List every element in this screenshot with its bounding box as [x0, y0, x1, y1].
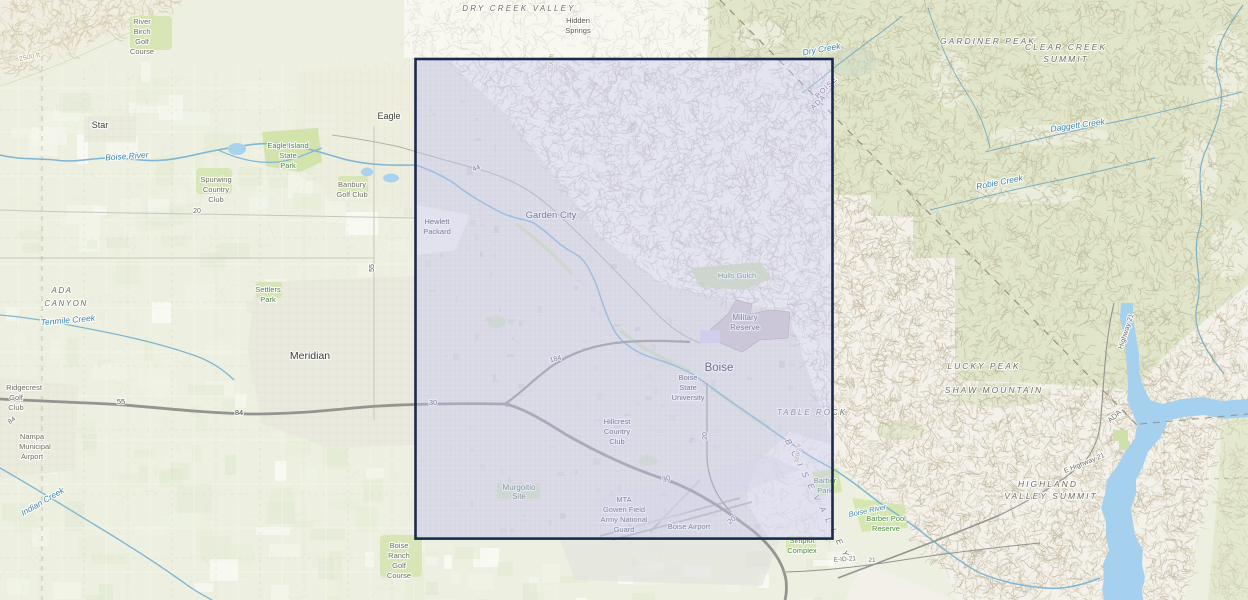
svg-text:LUCKY PEAK: LUCKY PEAK: [947, 361, 1020, 371]
svg-text:Star: Star: [92, 120, 109, 130]
svg-text:Birch: Birch: [133, 27, 150, 36]
svg-text:84: 84: [235, 408, 243, 417]
svg-text:Golf: Golf: [392, 561, 407, 570]
svg-text:Spurwing: Spurwing: [200, 175, 231, 184]
svg-text:Meridian: Meridian: [290, 350, 330, 362]
svg-text:Park: Park: [280, 161, 296, 170]
svg-text:Ranch: Ranch: [388, 551, 410, 560]
svg-text:Hidden: Hidden: [566, 16, 590, 25]
svg-text:Banbury: Banbury: [338, 180, 366, 189]
svg-text:Airport: Airport: [21, 452, 44, 461]
svg-text:Boise: Boise: [390, 541, 409, 550]
svg-text:CLEAR CREEK: CLEAR CREEK: [1025, 42, 1107, 52]
svg-text:Barber Pool: Barber Pool: [866, 514, 906, 523]
svg-text:SHAW MOUNTAIN: SHAW MOUNTAIN: [945, 385, 1043, 395]
svg-text:Settlers: Settlers: [255, 285, 281, 294]
svg-text:Country: Country: [203, 185, 230, 194]
svg-text:Eagle Island: Eagle Island: [267, 141, 308, 150]
svg-text:CANYON: CANYON: [44, 299, 87, 308]
svg-text:Golf Club: Golf Club: [336, 190, 367, 199]
svg-text:Club: Club: [8, 403, 23, 412]
svg-text:HIGHLAND: HIGHLAND: [1018, 479, 1078, 489]
svg-text:55: 55: [117, 397, 125, 406]
svg-text:Course: Course: [130, 47, 154, 56]
svg-text:Park: Park: [260, 295, 276, 304]
svg-text:Complex: Complex: [787, 546, 817, 555]
svg-text:State: State: [279, 151, 297, 160]
svg-text:Eagle: Eagle: [377, 111, 400, 121]
svg-text:GARDINER PEAK: GARDINER PEAK: [940, 36, 1036, 46]
svg-text:River: River: [133, 17, 151, 26]
svg-text:20: 20: [193, 208, 201, 215]
svg-text:Club: Club: [208, 195, 223, 204]
svg-text:Ridgecrest: Ridgecrest: [6, 383, 43, 392]
svg-text:DRY CREEK VALLEY: DRY CREEK VALLEY: [462, 4, 575, 13]
svg-text:Reserve: Reserve: [872, 524, 900, 533]
svg-text:ADA: ADA: [51, 286, 73, 295]
svg-text:SUMMIT: SUMMIT: [1043, 54, 1089, 64]
svg-text:Nampa: Nampa: [20, 432, 45, 441]
svg-text:55: 55: [369, 264, 376, 272]
svg-text:Golf: Golf: [9, 393, 24, 402]
svg-text:VALLEY SUMMIT: VALLEY SUMMIT: [1004, 491, 1097, 501]
svg-text:21: 21: [868, 557, 876, 564]
svg-text:Golf: Golf: [135, 37, 150, 46]
svg-text:Springs: Springs: [565, 26, 591, 35]
svg-text:Course: Course: [387, 571, 411, 580]
svg-text:Municipal: Municipal: [19, 442, 51, 451]
